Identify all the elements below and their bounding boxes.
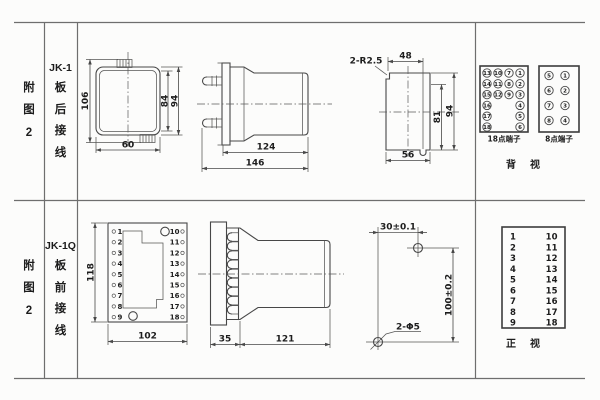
terminal-number: 2 [118,239,123,247]
front-terminals-left: 1 2 3 4 5 6 7 8 9 [112,228,122,322]
terminal-number: 4 [510,265,516,275]
rear-side-view-drawing: 124 146 [197,63,332,172]
terminal-number: 8 [118,303,123,311]
socket-step-outline [123,231,163,308]
dim-label-106: 106 [81,92,91,111]
terminal-number: 4 [563,119,567,125]
dim-label-146: 146 [246,159,265,169]
mounting-hole [161,227,170,236]
terminal-block-18-caption: 18点端子 [488,134,521,144]
front-view-label: 正 视 [506,337,542,350]
terminal-number: 2 [563,89,567,95]
terminal-number: 16 [546,297,558,307]
drill-pattern-drawing: 30±0.1 100±0.2 2-Φ5 [366,223,459,351]
terminal-number: 1 [518,71,522,77]
terminal-number: 4 [118,260,123,268]
relay-dimension-figure-page: 附 图 2 JK-1 板 后 接 线 附 图 2 JK-1Q 板 前 接 线 [0,0,600,400]
dim-label-121: 121 [276,335,295,345]
terminal-number: 13 [546,265,558,275]
dim-label-56: 56 [402,151,415,161]
terminal-number: 14 [483,82,491,88]
terminal-number: 10 [494,71,502,77]
terminal-screw-stems [232,233,239,314]
dim-label-94: 94 [171,95,181,108]
terminal-number: 17 [170,303,180,311]
terminal-circles [483,69,524,131]
terminal-number: 1 [563,74,567,80]
terminal-number: 12 [170,249,180,257]
terminal-number: 3 [118,249,123,257]
terminal-number: 3 [563,104,567,110]
terminal-number: 11 [170,239,180,247]
terminal-hatching [120,60,152,143]
terminal-number: 17 [546,308,558,318]
panel-cutout-drawing: 2-R2.5 48 81 94 56 [350,52,459,165]
terminal-number: 7 [510,297,516,307]
terminal-number: 16 [483,103,491,109]
terminal-number: 6 [518,125,522,131]
terminal-number: 18 [170,314,180,322]
dim-label-radius: 2-R2.5 [350,57,383,67]
front-terminals-right: 10 11 12 13 14 15 16 17 18 [170,228,184,322]
terminal-number: 16 [170,292,180,300]
terminal-screw-heads [203,77,207,127]
terminal-number: 5 [547,74,551,80]
terminal-number: 8 [507,82,511,88]
terminal-number: 13 [483,71,491,77]
dim-label-60: 60 [122,141,135,151]
terminal-strip-top [117,60,132,68]
terminal-number: 18 [483,125,491,131]
terminal-number: 8 [547,119,551,125]
terminal-number: 10 [170,228,180,236]
terminal-block-8: 5 6 7 8 1 2 3 4 8点端子 [539,66,579,144]
terminal-number: 5 [510,276,516,286]
terminal-number: 3 [510,254,516,264]
terminal-number: 6 [510,286,516,296]
terminal-number: 14 [170,271,180,279]
dim-label-81: 81 [433,111,443,124]
terminal-number: 11 [494,82,502,88]
rear-view-label: 背 视 [506,158,542,171]
terminal-number: 10 [546,233,558,243]
dim-label-124: 124 [257,143,276,153]
front-view-drawing: 1 2 3 4 5 6 7 8 9 10 11 12 13 14 15 16 1… [87,223,188,345]
terminal-number: 7 [547,104,551,110]
terminal-screw-heads [227,233,231,314]
terminal-number: 12 [494,93,502,99]
terminal-number: 5 [518,114,522,120]
terminal-number: 15 [546,286,558,296]
terminal-number: 9 [510,319,516,329]
terminal-number: 8 [510,308,516,318]
terminal-number: 15 [170,282,180,290]
mounting-hole [129,312,138,321]
terminal-number: 2 [510,243,516,253]
terminal-number: 12 [546,254,558,264]
terminal-number: 6 [118,282,123,290]
dim-label-35: 35 [219,335,232,345]
radius-leader-line [375,66,387,75]
terminal-number: 2 [518,82,522,88]
terminal-number: 7 [118,292,123,300]
terminal-panel-front: 1 2 3 4 5 6 7 8 9 10 11 12 13 14 15 16 1… [502,227,565,350]
dim-label-102: 102 [138,332,157,342]
terminal-number: 9 [118,314,123,322]
terminal-number: 15 [483,93,491,99]
terminal-number: 1 [118,228,123,236]
dim-label-118: 118 [87,263,97,282]
terminal-number: 13 [170,260,180,268]
dim-label-84: 84 [161,95,171,108]
terminal-number: 17 [483,114,491,120]
flange-plate [211,222,227,325]
terminal-number: 7 [507,71,511,77]
terminal-strip-bottom [140,135,155,143]
terminal-number: 3 [518,93,522,99]
terminal-number: 4 [518,103,522,109]
rear-outline-drawing: 106 84 94 60 [81,52,183,153]
terminal-number: 9 [507,93,511,99]
dim-label-100: 100±0.2 [445,274,455,316]
terminal-block-8-caption: 8点端子 [545,134,573,144]
terminal-screw-stems [207,76,223,129]
terminal-number: 14 [546,276,558,286]
terminal-block-18: 13 14 15 16 17 18 10 11 12 7 8 9 1 2 3 4… [480,66,528,144]
dim-label-48: 48 [399,52,412,62]
terminal-number: 1 [510,233,516,243]
dim-label-94: 94 [446,105,456,118]
dim-label-30: 30±0.1 [380,223,416,233]
dim-label-holes: 2-Φ5 [396,323,420,333]
terminal-number: 5 [118,271,123,279]
terminal-number: 6 [547,89,551,95]
terminal-number: 18 [546,319,558,329]
drawing-canvas: 106 84 94 60 124 146 [0,0,600,400]
terminal-number: 11 [546,243,558,253]
front-side-view-drawing: 35 121 [198,222,344,348]
